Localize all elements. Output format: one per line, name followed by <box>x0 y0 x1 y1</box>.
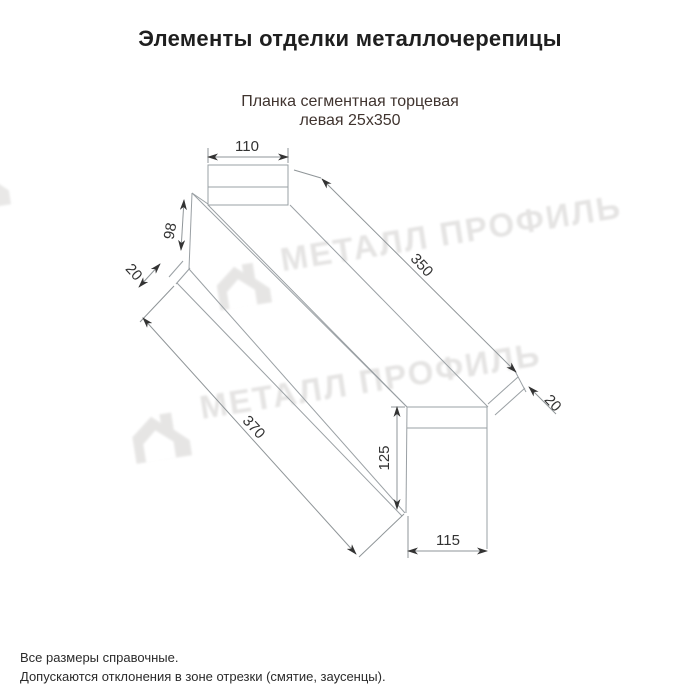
watermark-text: МЕТАЛЛ ПРОФИЛЬ <box>197 335 544 426</box>
watermark-text: МЕТАЛЛ ПРОФИЛЬ <box>278 188 625 279</box>
footnote-1: Все размеры справочные. <box>20 648 386 667</box>
right-hem-edge-2 <box>495 388 525 415</box>
dim-label-left-hem: 20 <box>122 260 146 284</box>
dim-label-bottom-width: 115 <box>436 532 460 549</box>
left-end-edge <box>189 193 192 269</box>
left-end-top-edge <box>192 193 208 204</box>
extension-lines <box>140 148 408 558</box>
right-hem-edge-1 <box>488 377 518 404</box>
right-end-left-edge <box>406 407 407 513</box>
metal-profil-house-logo-icon <box>214 261 272 311</box>
technical-drawing: МЕТАЛЛ ПРОФИЛЬ МЕТАЛЛ ПРОФИЛЬ <box>0 0 700 700</box>
metal-profil-house-logo-icon <box>130 410 193 464</box>
footnote-2: Допускаются отклонения в зоне отрезки (с… <box>20 667 386 686</box>
left-hem-cap <box>176 268 190 284</box>
dim-line-98 <box>181 200 184 250</box>
watermark-fragment-left <box>0 163 11 213</box>
dim-label-left-edge: 98 <box>161 221 181 241</box>
watermark-row-1: МЕТАЛЛ ПРОФИЛЬ <box>211 188 627 311</box>
dim-label-right-hem: 20 <box>541 391 565 415</box>
dim-label-top-width: 110 <box>235 138 259 155</box>
dim-label-right-height: 125 <box>376 445 393 470</box>
top-end-face <box>208 165 288 205</box>
left-hem-cap-inner <box>169 261 183 277</box>
footnotes: Все размеры справочные. Допускаются откл… <box>20 648 386 686</box>
watermark-row-2: МЕТАЛЛ ПРОФИЛЬ <box>127 335 548 464</box>
drawing-page: Элементы отделки металлочерепицы Планка … <box>0 0 700 700</box>
